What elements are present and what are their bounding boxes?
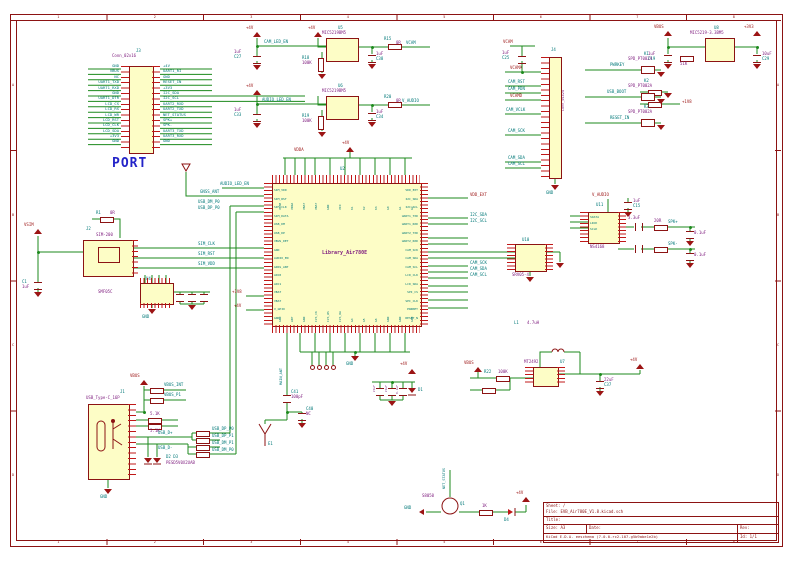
power-flag: +4V [308,26,315,30]
esd-diode-symbol [153,458,161,463]
ic-ref: U10 [522,238,529,242]
pin-name: I2S_CK [314,298,318,322]
cap-value: 3.3uF [628,216,640,220]
net-label: VBUS_P1 [164,393,181,397]
cap-ref: C38 [376,57,383,61]
net-label: USB_DP_P0 [198,206,220,210]
junction-dot [37,251,40,254]
pin-name: UART2_RXD [388,237,418,246]
power-flag: VSIM [24,223,34,227]
pin-name: ADC0 [274,271,304,280]
diode-ref: D1 [418,388,423,392]
junction-dot [286,411,289,414]
junction-dot [371,46,374,49]
pin-name: ANT [290,298,294,322]
gnd-arrow-icon [419,509,424,515]
junction-dot [371,104,374,107]
net-label: MAIN_ANT [280,368,284,385]
title-block-size: Size: A3 [546,526,565,531]
title-block-title: Title: [546,518,560,523]
junction-dot [354,351,357,354]
pin-name: VBUS_DET [274,237,304,246]
cap-value: 100pF [291,395,303,399]
power-arrow-icon [408,369,416,374]
power-arrow-icon [253,90,261,95]
resistor [496,376,510,382]
junction-dot [391,381,394,384]
port-body [129,66,154,154]
power-flag: VDDA [294,148,304,152]
gnd-symbol [253,123,261,128]
cap-ref: C33 [234,113,241,117]
power-flag: +1V8 [682,100,692,104]
resistor [654,225,668,231]
net-label: CAM_RST [508,80,525,84]
wires-antenna [265,333,302,424]
sim-esd-body [140,283,174,305]
inductor-ref: L1 [514,321,519,325]
res-ref: R1 [96,211,101,215]
gnd-symbol [686,263,694,268]
cam-conn-pins [541,57,549,177]
net-label: PWRKEY [610,63,624,67]
port-value: Conn_02x16 [112,54,136,58]
cap-value: NC [306,412,311,416]
power-arrow-icon [522,497,530,502]
net-label: AUDIO_LED_EN [220,182,249,186]
pin-name: VIO [338,186,342,210]
net-label: GNSS_ANT [200,190,219,194]
gnd-symbol [34,292,42,297]
net-label: USB_D- [158,446,172,450]
capacitor [368,55,376,63]
reg-value: MIC5219BM5 [322,89,346,93]
pin-name: GNSS_ANT [274,263,304,272]
res-value: 100K [302,119,312,123]
pin-name: CAM_SCL [388,263,418,272]
net-label [79,144,119,149]
capacitor [34,282,42,290]
resistor [318,58,324,72]
sim-esd-pins-top [140,278,172,283]
led-ref: D4 [504,518,509,522]
junction-dot [599,373,602,376]
capacitor [176,294,184,302]
net-label: I2C_SCL [470,219,487,223]
junction-dot [143,411,146,414]
dcdc-body [533,367,559,387]
capacitor [686,253,694,261]
pin-name: USB_DP [274,229,304,238]
net-label: CAM_PDN [508,87,525,91]
pin-name: UART1_RXD [388,220,418,229]
conn-ref: J1 [120,390,125,394]
pin-name: AUDIO_EN [274,254,304,263]
conn-ref: J2 [86,227,91,231]
net-label: VCAMA [510,66,522,70]
transistor-body [442,498,458,514]
net-label: CAM_SDA [508,156,525,160]
net-label: USB_DM_P1 [212,441,234,445]
net-label: USB_DM_P0 [212,448,234,452]
pin-name: SPI_CS [388,288,418,297]
antenna-ref: E1 [268,442,273,446]
pin-name: K1 [350,186,354,210]
power-arrow-icon [753,31,761,36]
pin-name: GND [386,298,390,322]
ic-ref: U7 [560,360,565,364]
capacitor [253,56,261,64]
pin-name: CAM_SDA [388,254,418,263]
mcu-pins-right [420,183,428,325]
cap-value: 0.1uF [694,231,706,235]
pin-name: I2S_DA [338,298,342,322]
junction-dot [689,248,692,251]
gnd-symbol [148,309,156,314]
res-value: 5.1K [150,412,160,416]
title-block-file: File: EVB_Air780E_V1.8.kicad.sch [546,510,623,515]
power-flag: VCAM [503,40,513,44]
junction-dot [256,103,259,106]
pin-name: K3 [374,186,378,210]
net-label: SIM_RST [198,252,215,256]
dcdc-pins-right [557,367,565,385]
net-label: AUDIO_LED_EN [262,98,291,102]
capacitor [596,381,604,389]
button-value: SPD_PT002A [628,110,652,114]
cap-ref: C27 [234,55,241,59]
net-label: CAM_SDA [470,267,487,271]
reg-body [326,96,359,120]
net-label: USB_DP_P1 [212,434,234,438]
net-label: NET_STATUS [443,468,447,489]
junction-dot [689,226,692,229]
conn-value: SIM-200 [96,233,113,237]
diode-symbol [408,388,416,393]
pin-name: GND [398,298,402,322]
net-label: SPK+ [668,220,678,224]
net-label: CAM_SCK [470,261,487,265]
junction-dot [667,46,670,49]
power-flag: +4V [630,358,637,362]
power-flag: V_AUDIO [592,193,609,197]
resistor [100,217,114,223]
pin-name: I2S_WS [326,298,330,322]
conn-value: USB_Type-C_16P [86,396,120,400]
capacitor [283,395,291,403]
pin-name: G5 [362,298,366,322]
capacitor [624,202,632,210]
gnd-symbol [253,65,261,70]
title-block-id: Id: 1/1 [740,535,757,540]
power-flag: +4V [400,362,407,366]
no-connect-icon [310,365,315,370]
capacitor [518,56,526,64]
net-label: SIM_VDD [198,262,215,266]
net-label: VCAMD [510,94,522,98]
gnd-symbol [657,72,665,77]
sim-body [83,240,134,277]
res-ref: R20 [384,95,391,99]
usb-body [88,404,130,480]
power-flag: +4V [342,141,349,145]
net-label: CAM_LED_EN [264,40,288,44]
gnd-symbol [657,99,665,104]
net-label: V_AUDIO [402,99,419,103]
amp-pins-left [580,212,588,242]
gnd-label: GND [142,315,149,319]
gnd-symbol [388,401,396,406]
res-value: 100K [498,370,508,374]
pin-name: CAM_SCK [388,246,418,255]
cap-ref: C15 [633,204,640,208]
pin-name: LCD_SDA [388,280,418,289]
capacitor [368,113,376,121]
power-arrow-icon [253,32,261,37]
transistor-value: S8050 [422,494,434,498]
net-label: CAM_SCK [508,129,525,133]
res-value: 0R [396,99,401,103]
net-label: SPK- [668,242,678,246]
no-connect-icon [324,365,329,370]
mcu-pins-left [264,183,272,325]
pin-name: GND [302,298,306,322]
pin-name: VDDA [290,186,294,210]
power-flag: +1V8 [232,290,242,294]
reg-body [326,38,359,62]
net-label: SIM_CLK [198,242,215,246]
esd-ic-pins-left [507,244,515,270]
gnd-symbol [368,122,376,127]
power-flag: +4V [246,26,253,30]
resistor [196,431,210,437]
no-connect-icon [317,365,322,370]
junction-dot [521,71,524,74]
pin-name: GND [278,298,282,322]
port-pins-left [121,66,129,152]
res-value: 0R [110,211,115,215]
reg-value: MIC5219-3.3BM5 [690,31,724,35]
cap-ref: C37 [604,383,611,387]
pin-name: G0 [386,186,390,210]
res-ref: R15 [384,37,391,41]
sim-slot [98,247,120,263]
sim-pins [132,240,138,275]
gnd-symbol [596,391,604,396]
cap-value: 0.1uF [396,385,399,394]
title-block: Sheet: / File: EVB_Air780E_V1.8.kicad.sc… [543,502,779,543]
resistor [318,116,324,130]
port-title: PORT [112,157,147,170]
led-symbol [508,509,513,515]
button-value: SPD_PT002A [628,57,652,61]
power-arrow-icon [140,380,148,385]
gnd-symbol [318,74,326,79]
inductor-value: 4.7uH [527,321,539,325]
cap-value: 22uF [373,385,376,392]
net-label: USB_DP_P0 [212,427,234,431]
resistor [150,388,164,394]
capacitor [200,294,208,302]
gnd-symbol [556,263,564,268]
capacitor [635,245,643,253]
ic-value: NS4168 [590,245,604,249]
cap-value: 22uF [385,385,388,392]
title-block-divider [544,516,778,517]
res-value: 51K [680,62,687,66]
net-label [163,144,211,149]
diode-value: PESD5V0X2UAB [166,461,195,465]
res-value: 100K [302,61,312,65]
ic-ref: U11 [596,203,603,207]
pin-name: VBAT [314,186,318,210]
pin-name: UART2_TXD [388,229,418,238]
net-label: CAM_SCL [508,162,525,166]
net-label: USB_D+ [158,431,172,435]
net-label: RESET_IN [610,116,629,120]
power-flag: VBUS [654,25,664,29]
power-flag: +4V [234,304,241,308]
gnd-symbol [657,125,665,130]
gnd-label: GND [546,191,553,195]
title-block-date: Date: [589,526,601,531]
amp-pin-names: SDATALRCKSCLK [590,214,599,232]
pin-name: ADC1 [274,280,304,289]
junction-dot [256,45,259,48]
esd-ic-body [515,244,547,272]
junction-dot [756,46,759,49]
power-arrow-icon [346,147,354,152]
resistor [196,452,210,458]
esd-ic-pins-right [545,244,553,270]
title-block-divider [586,524,587,533]
inductor-symbol [552,349,564,352]
sim-esd-pins-bottom [140,303,172,308]
capacitor [376,388,384,396]
transistor-ref: Q1 [460,502,465,506]
gnd-symbol [298,423,306,428]
resistor [150,398,164,404]
net-label: VDD_EXT [470,193,487,197]
net-label: VCAM [406,41,416,45]
gnd-label: GND [404,506,411,510]
power-arrow-icon [34,229,42,234]
net-label: CAM_SCL [470,273,487,277]
res-value: 20R [654,219,661,223]
capacitor [664,55,672,63]
capacitor [298,413,306,421]
pin-name: UART1_TXD [388,212,418,221]
cap-ref: C25 [502,56,509,60]
net-label: I2C_SDA [470,213,487,217]
pushbutton [641,66,655,74]
port-right-labels: +4VUART1_RIGNDRESET_IN+3V3I2C_SDAI2C_SCL… [163,63,211,149]
power-flag: +4V [516,491,523,495]
power-flag: +3V3 [744,25,754,29]
pin-name: VBAT [302,186,306,210]
esd-diode-symbol [144,458,152,463]
pin-name: K2 [362,186,366,210]
gnss-antenna-symbol [182,164,190,171]
cap-value: 1uF [22,285,29,289]
gnd-symbol [188,305,196,310]
gnd-label: GND [100,495,107,499]
pin-name: G2 [410,186,414,210]
title-block-divider [737,524,738,542]
power-flag: +4V [246,84,253,88]
mcu-pins-bottom [272,325,420,333]
diode-ref: D2 D3 [166,455,178,459]
pin-name: GND [274,246,304,255]
port-ref: J3 [136,49,141,53]
gnd-symbol [664,93,672,98]
pin-name: SIM_DATA [274,212,304,221]
no-connect-icon [331,365,336,370]
title-block-tool: KiCad E.D.A. eeschema (7.0.0-rc2-107-g5b… [546,535,658,540]
power-flag: VBUS [464,361,474,365]
capacitor [686,231,694,239]
port-left-labels: GNDVBUSNCUART1_TXDUART1_RXDGNDUART1_DTRL… [79,63,119,149]
capacitor [188,294,196,302]
mcu-value: Library_Air780E [322,251,367,256]
net-label: CAM_VCLK [506,108,525,112]
conn-value: Conn_01x24 [562,90,566,111]
power-arrow-icon [314,32,322,37]
capacitor [253,114,261,122]
resistor [654,247,668,253]
conn-ref: J4 [551,48,556,52]
resistor [482,388,496,394]
net-label: USB_DM_P0 [198,200,220,204]
pin-name: USB_DM [274,220,304,229]
gnd-symbol [664,64,672,69]
button-value: SPD_PT002A [628,84,652,88]
gnd-symbol [368,64,376,69]
capacitor [399,388,407,396]
gnd-symbol [686,241,694,246]
pin-name: GND [326,186,330,210]
gnd-symbol [753,64,761,69]
mcu-ref: U2 [340,167,345,171]
pin-name: G4 [350,298,354,322]
cap-ref: C34 [376,115,383,119]
pin-name: G6 [374,298,378,322]
mcu-top-pin-names: VCAMVDDAVBATVBATGNDVIOK1K2K3G0G1G2 [278,186,414,210]
reg-body [705,38,735,62]
ic-value: SMF05C [98,290,112,294]
resistor [479,510,493,516]
net-label: USB_BOOT [607,90,626,94]
port-pins-right [152,66,160,152]
pin-name: SCLK [590,226,599,232]
pin-name: VCAM [278,186,282,210]
reg-value: MIC5219BM5 [322,31,346,35]
pin-name: VBAT [274,288,304,297]
pushbutton [641,93,655,101]
pin-name: LCD_CLK [388,271,418,280]
gnd-symbol [318,132,326,137]
capacitor [635,223,643,231]
net-label: VBUS_INT [164,383,183,387]
pin-name: GND [410,298,414,322]
cap-ref: C29 [762,57,769,61]
mcu-pins-top [272,175,420,183]
mcu-bottom-pin-names: GNDANTGNDI2S_CKI2S_WSI2S_DAG4G5G6GNDGNDG… [278,298,414,322]
res-ref: R22 [484,370,491,374]
cap-value: 0.1uF [694,253,706,257]
dcdc-pins-left [525,367,533,385]
pin-name: G1 [398,186,402,210]
